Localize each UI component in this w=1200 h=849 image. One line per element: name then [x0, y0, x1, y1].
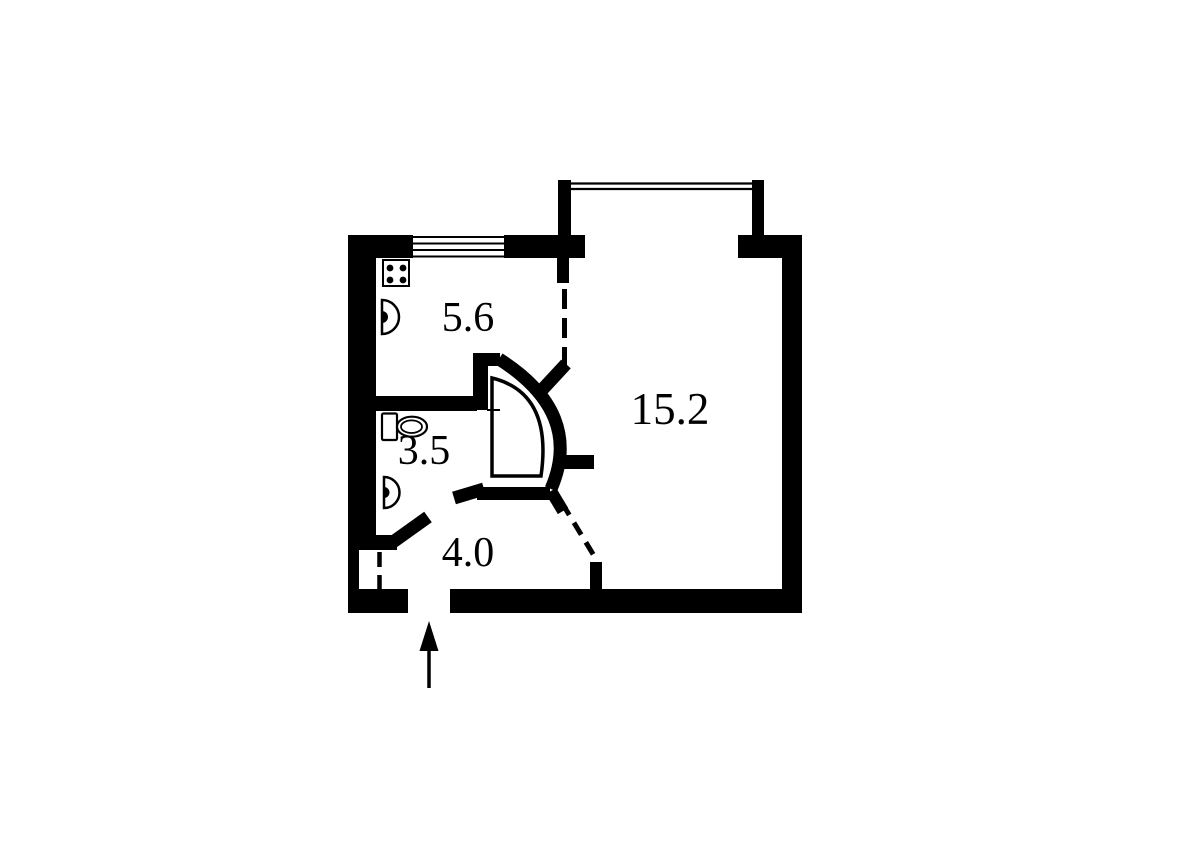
wall-bottom — [450, 589, 802, 613]
wall-room-bottom-stub — [590, 562, 602, 592]
floor-plan-drawing: 5.6 3.5 4.0 15.2 — [0, 0, 1200, 849]
entrance-arrow-icon — [420, 621, 439, 688]
wall-kitchen-bottom — [374, 396, 477, 411]
living-room-opening-dashed-line — [562, 503, 596, 559]
living-room-window-icon — [571, 184, 752, 190]
kitchen-sink-icon — [382, 300, 399, 334]
wall-bay-left-stub — [558, 180, 571, 235]
bathroom-area-label: 3.5 — [398, 428, 451, 474]
bathroom-sink-icon — [384, 477, 400, 508]
wall-divider-stub — [557, 258, 569, 283]
wall-bath-diagonal-right — [454, 489, 484, 498]
kitchen-area-label: 5.6 — [442, 295, 495, 341]
hallway-area-label: 4.0 — [442, 530, 495, 576]
wall-arc-se-stub — [551, 491, 563, 511]
kitchen-window-icon — [413, 235, 504, 258]
wall-hallway-bar — [477, 487, 550, 500]
wall-arc-ne-stub — [541, 364, 566, 391]
wall-top-right-block — [738, 235, 802, 258]
living-room-area-label: 15.2 — [631, 384, 710, 434]
wall-left — [348, 235, 376, 550]
wall-bottom-left — [348, 589, 408, 613]
wall-bath-diagonal-left — [393, 517, 428, 542]
wall-right — [782, 235, 802, 613]
stove-icon — [383, 260, 409, 286]
wall-arc-e-stub — [558, 455, 594, 469]
floor-plan-page: 5.6 3.5 4.0 15.2 — [0, 0, 1200, 849]
wall-bay-right-stub — [752, 180, 764, 235]
